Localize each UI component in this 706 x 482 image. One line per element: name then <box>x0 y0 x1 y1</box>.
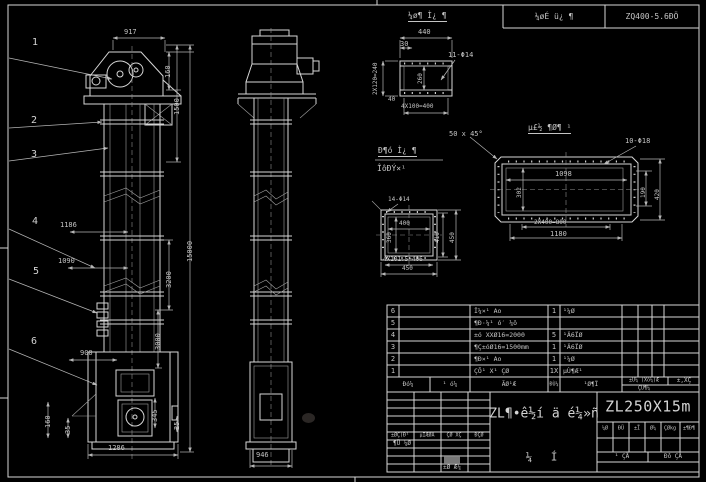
dim-label: 11-Φ14 <box>448 52 473 59</box>
dim-label: 400 <box>399 221 410 227</box>
spec-header-1: ¼Ø <box>602 427 608 432</box>
dim-label: 4X101.5=406 <box>383 257 423 263</box>
sheet-count-label: ¹ ÇÅ <box>615 454 629 460</box>
part-row-no: 4 <box>387 332 399 339</box>
part-row-qty: 5 <box>548 332 560 339</box>
part-row-name: ¶Ð×¹ Ao <box>474 356 501 363</box>
part-row-name: ÇÕ¹ X¹ ÇØ <box>474 368 509 375</box>
cad-sheet: ¼øÉ ü¿ ¶ ZQ400-5.6ÐÖ 9171186109090012869… <box>0 0 706 482</box>
dim-label: 3200 <box>166 271 173 288</box>
drawing-linework <box>0 0 706 482</box>
parts-header-no: Ðó¼ <box>403 382 414 388</box>
dim-label: 450 <box>450 232 456 243</box>
parts-header-right-top-left: ±Ü¼ (Xó¼)Æ <box>629 379 659 384</box>
dim-label: 440 <box>418 29 431 36</box>
parts-header-qty: ÐÙ¼ <box>549 383 558 388</box>
sig-bottom-label: ±Ø Æ¼ <box>443 465 461 471</box>
header-model-text: ZQ400-5.6ÐÖ <box>626 12 679 21</box>
dim-label: 40 <box>388 97 395 103</box>
sig-header-1: ±ØÇ(Ð¹ <box>391 434 409 439</box>
dim-label: 345 <box>152 409 159 422</box>
dim-label: 160 <box>45 415 52 428</box>
part-row-material: µÙ¶Æ¹ <box>563 368 583 375</box>
dim-label: 2X400=800 <box>534 220 567 226</box>
stamp-glyph-1: ¼ <box>526 452 533 463</box>
side-view <box>238 28 319 468</box>
header-model-cell: ZQ400-5.6ÐÖ <box>605 5 699 28</box>
spec-header-2: ÐÜ <box>618 427 624 432</box>
dim-label: 35 <box>65 426 72 434</box>
part-row-no: 6 <box>387 308 399 315</box>
dim-label: 25 <box>174 422 181 430</box>
dim-label: 946 <box>256 452 269 459</box>
screen-smudge <box>302 413 315 423</box>
signature-stamp-blob <box>444 456 460 464</box>
dim-label: 10-Φ18 <box>625 138 650 145</box>
parts-header-code: ¹ ó¼ <box>443 382 457 388</box>
part-row-name: ¶Ç±óØ16=1500mm <box>474 344 529 351</box>
spec-header-5: ÇØkg <box>664 427 676 432</box>
parts-header-material: ¹Ø¶Ï <box>584 382 598 388</box>
dim-label: 160 <box>165 65 172 78</box>
sig-header-3: ÇØ XÇ <box>446 434 461 439</box>
dim-label: 1186 <box>60 222 77 229</box>
balloon-1: 1 <box>32 38 38 48</box>
part-row-qty: 1X <box>548 368 560 375</box>
dim-label: 410 <box>435 232 441 243</box>
dim-label: 14-Φ14 <box>388 197 410 203</box>
detail-casing <box>470 137 665 241</box>
part-row-material: ¹¼Ø <box>563 356 575 363</box>
dim-label: µ£½ ¶Ø¶ ¹ <box>528 124 571 134</box>
dim-label: Ð¶ó Ì¿ ¶ <box>378 147 417 157</box>
sig-header-4: ÐÇØ <box>474 434 483 439</box>
dim-label: 15000 <box>187 241 194 262</box>
balloon-2: 2 <box>31 116 37 126</box>
parts-header-right-bottom: ÇÙ¶¼ <box>638 387 650 392</box>
part-row-material: ¹¼Ø <box>563 308 575 315</box>
dim-label: ÎôÐÝ×¹ <box>377 165 406 173</box>
dim-label: 450 <box>402 266 413 272</box>
drawing-model: ZL250X15m <box>605 400 691 415</box>
balloon-6: 6 <box>31 337 37 347</box>
parts-header-right-top-right: ±,XÇ <box>677 378 691 384</box>
part-row-material: ¹Ä6ÏØ <box>563 344 583 351</box>
part-row-qty: 1 <box>548 344 560 351</box>
dim-label: 1286 <box>108 445 125 452</box>
dim-label: 1098 <box>555 171 572 178</box>
sheet-number-label: Ðô ÇÅ <box>664 454 682 460</box>
dim-label: 360 <box>387 232 393 243</box>
balloon-5: 5 <box>33 267 39 277</box>
dim-label: 900 <box>80 350 93 357</box>
dim-label: 50 x 45° <box>449 131 483 138</box>
dim-label: 30 <box>400 41 408 48</box>
dim-label: 1180 <box>550 231 567 238</box>
part-row-name: Î¼×¹ Ao <box>474 308 501 315</box>
dim-label: 190 <box>641 187 647 198</box>
part-row-qty: 1 <box>548 356 560 363</box>
spec-header-6: ±¶Ð¶ <box>683 427 695 432</box>
part-row-name: ±ó XXØ16=2000 <box>474 332 525 339</box>
part-row-no: 3 <box>387 344 399 351</box>
dim-label: 1090 <box>58 258 75 265</box>
dim-label: 260 <box>418 73 424 84</box>
drawing-title: ZL¶•ê½í ä é¼»ñ <box>489 408 599 421</box>
part-row-no: 1 <box>387 368 399 375</box>
dim-label: 3000 <box>155 333 162 350</box>
dim-label: 2X120=240 <box>373 62 379 95</box>
stamp-glyph-2: Í <box>551 452 558 463</box>
header-project-cell: ¼øÉ ü¿ ¶ <box>503 5 605 28</box>
sig-header-2: µÏÆØÅ <box>419 434 434 439</box>
dim-label: 1500 <box>174 98 181 115</box>
dim-label: 420 <box>655 189 661 200</box>
part-row-no: 2 <box>387 356 399 363</box>
dim-label: 917 <box>124 29 137 36</box>
front-view <box>72 46 181 460</box>
parts-header-name: ÃØ¹Æ <box>502 382 516 388</box>
part-row-no: 5 <box>387 320 399 327</box>
header-project-text: ¼øÉ ü¿ ¶ <box>535 12 574 21</box>
part-row-qty: 1 <box>548 308 560 315</box>
part-row-name: ¶Ð·¼¹ ó′ ¼ô <box>474 320 517 327</box>
spec-header-3: ±Ï <box>634 427 640 432</box>
sig-row-label: ¶Ü ¼Ø <box>393 441 411 447</box>
balloon-4: 4 <box>32 217 38 227</box>
part-row-material: ¹Ä6ÏØ <box>563 332 583 339</box>
dim-label: 302 <box>517 187 523 198</box>
dim-label: 4X100=400 <box>401 104 434 110</box>
dim-label: ¼ø¶ Ì¿ ¶ <box>408 12 447 22</box>
balloon-3: 3 <box>31 150 37 160</box>
spec-header-4: Ø¼ <box>650 427 656 432</box>
